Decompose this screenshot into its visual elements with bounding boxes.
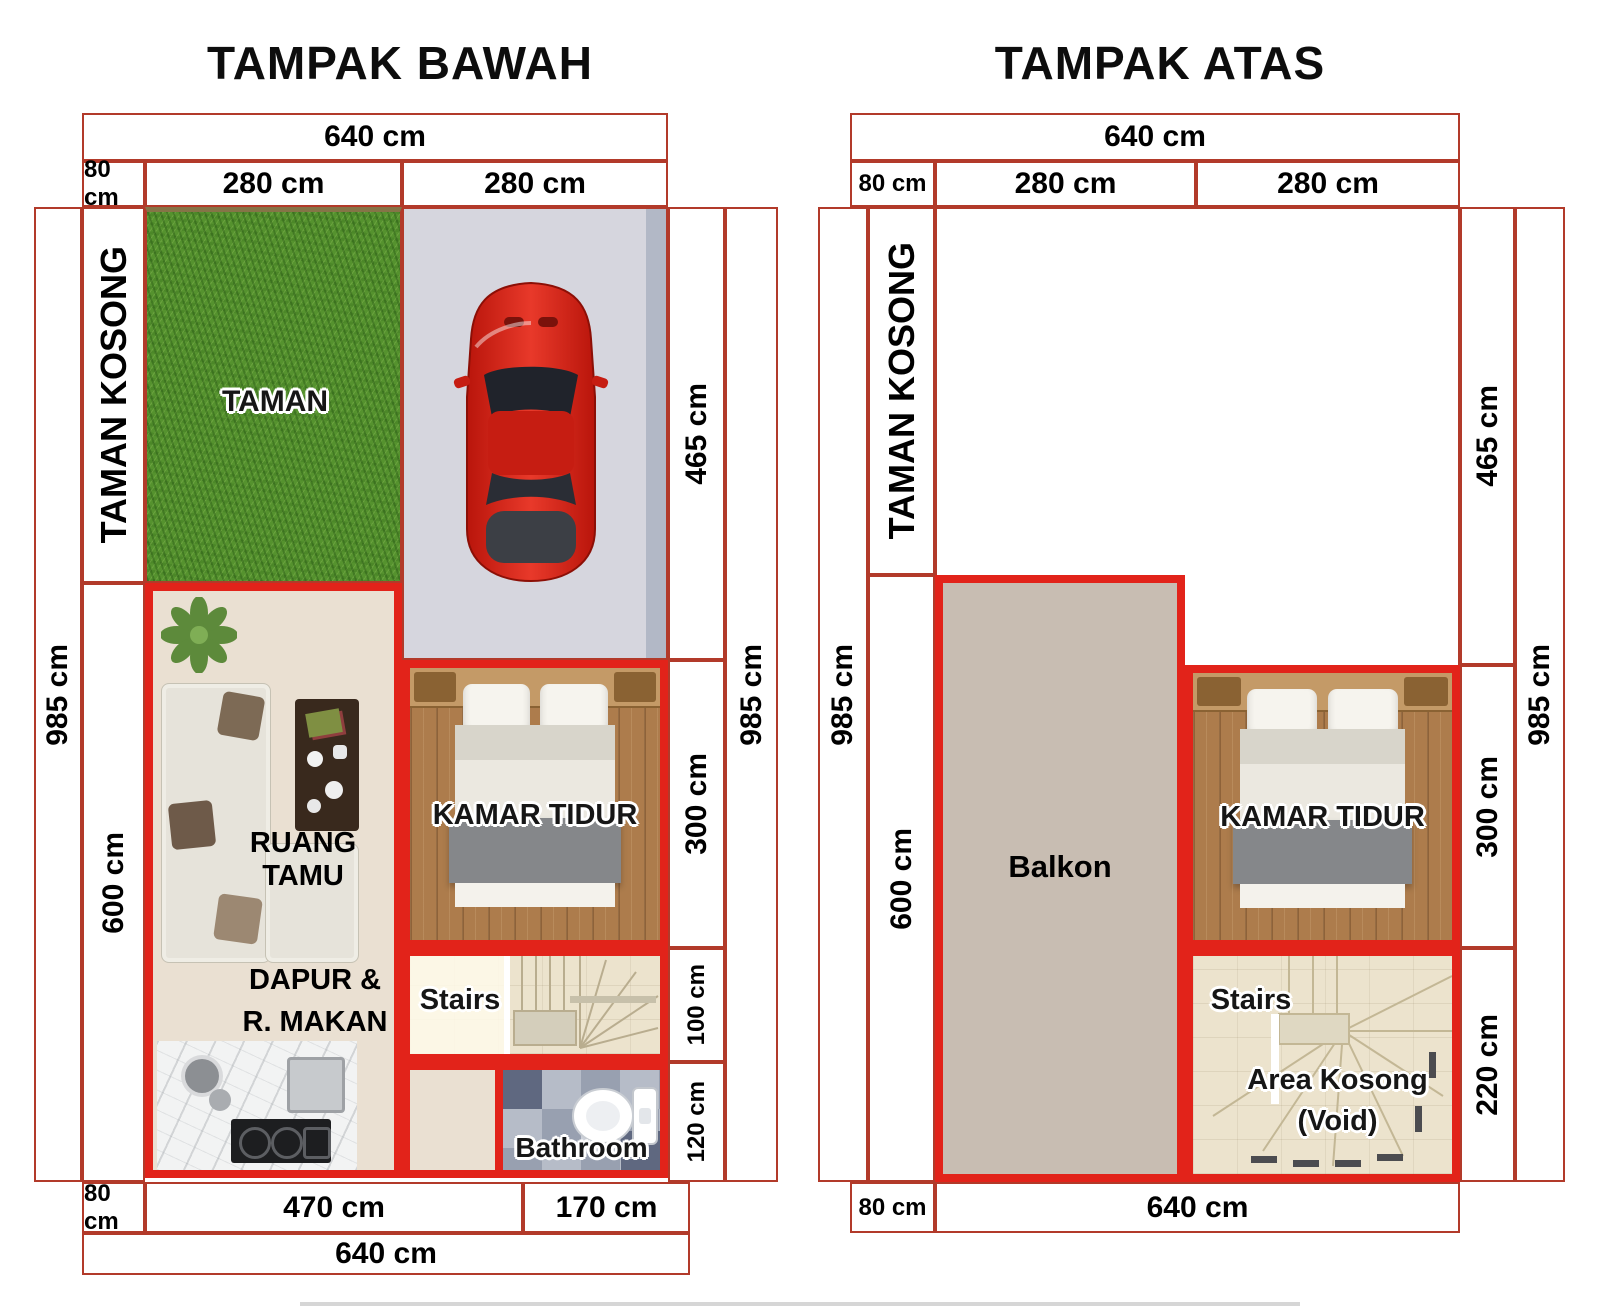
plan-bawah-title: TAMPAK BAWAH — [130, 36, 670, 90]
atas-dim-right-300: 300 cm — [1460, 665, 1515, 948]
bawah-dim-right-300: 300 cm — [668, 660, 725, 948]
bawah-dim-top-total: 640 cm — [82, 113, 668, 161]
kamar-tidur-room-bawah: KAMAR TIDUR — [402, 660, 668, 948]
floor-plan-canvas: TAMPAK BAWAH 640 cm 80 cm 280 cm 280 cm … — [0, 0, 1600, 1309]
atas-dim-top-280b: 280 cm — [1196, 161, 1460, 207]
bawah-dim-bottom-170: 170 cm — [523, 1182, 690, 1233]
bawah-dim-bottom-80: 80 cm — [82, 1182, 145, 1233]
coffee-table-graphic — [295, 699, 359, 831]
bawah-dim-right-465: 465 cm — [668, 207, 725, 660]
plant-graphic — [161, 597, 237, 673]
dapur-label: DAPUR & R. MAKAN — [225, 959, 405, 1043]
bottom-edge-line — [300, 1302, 1300, 1306]
plan-atas-title: TAMPAK ATAS — [890, 36, 1430, 90]
atas-dim-right-220: 220 cm — [1460, 948, 1515, 1182]
nightstand-right — [1404, 677, 1448, 706]
kamar-tidur-label-bawah: KAMAR TIDUR — [410, 799, 660, 832]
ruang-tamu-label: RUANG TAMU — [208, 827, 398, 893]
dapur-floor-patch — [402, 1062, 503, 1178]
red-car-top-view — [446, 277, 616, 589]
atas-dim-top-80: 80 cm — [850, 161, 935, 207]
atas-dim-bottom-total: 640 cm — [935, 1182, 1460, 1233]
bawah-dim-top-80: 80 cm — [82, 161, 145, 207]
nightstand-left — [1197, 677, 1241, 706]
kitchen-counter-graphic — [157, 1041, 357, 1170]
taman-label: TAMAN — [175, 385, 375, 419]
atas-dim-right-465: 465 cm — [1460, 207, 1515, 665]
bathroom-room: Bathroom — [495, 1062, 668, 1178]
bawah-dim-left-600: 600 cm — [82, 583, 145, 1182]
bawah-taman-kosong-strip: TAMAN KOSONG — [82, 207, 145, 583]
bed-sheet-fold — [1240, 729, 1406, 764]
nightstand-left — [414, 672, 457, 702]
atas-dim-top-total: 640 cm — [850, 113, 1460, 161]
area-kosong-void-label: Area Kosong (Void) — [1223, 1060, 1452, 1141]
living-dining-room: RUANG TAMU DAPUR & R. MAKAN — [145, 583, 402, 1178]
bed-foot-sheet — [455, 883, 615, 907]
kamar-tidur-room-atas: KAMAR TIDUR — [1185, 665, 1460, 948]
stairs-label-bawah: Stairs — [416, 984, 504, 1017]
sofa-graphic — [161, 683, 271, 963]
bathroom-label: Bathroom — [503, 1132, 660, 1164]
balkon-room: Balkon — [935, 575, 1185, 1182]
bawah-dim-top-280b: 280 cm — [402, 161, 668, 207]
bawah-dim-right-100: 100 cm — [668, 948, 725, 1062]
atas-dim-left-600: 600 cm — [868, 575, 935, 1182]
bawah-dim-left-985: 985 cm — [34, 207, 82, 1182]
atas-dim-left-985: 985 cm — [818, 207, 868, 1182]
atas-dim-bottom-80: 80 cm — [850, 1182, 935, 1233]
bawah-dim-bottom-total: 640 cm — [82, 1233, 690, 1275]
stairs-void-room-atas: Stairs Area Kosong (Void) — [1185, 948, 1460, 1182]
bawah-dim-top-280a: 280 cm — [145, 161, 402, 207]
atas-taman-kosong-strip: TAMAN KOSONG — [868, 207, 935, 575]
stairs-room-bawah: Stairs — [402, 948, 668, 1062]
stairs-label-atas: Stairs — [1201, 984, 1301, 1017]
nightstand-right — [614, 672, 657, 702]
atas-dim-top-280a: 280 cm — [935, 161, 1196, 207]
bed-foot-sheet — [1240, 884, 1406, 908]
kamar-tidur-label-atas: KAMAR TIDUR — [1193, 801, 1452, 834]
carport-wall-shadow — [646, 209, 666, 658]
balkon-label: Balkon — [943, 849, 1177, 885]
bawah-dim-right-985: 985 cm — [725, 207, 778, 1182]
bawah-dim-bottom-470: 470 cm — [145, 1182, 523, 1233]
bawah-dim-right-120: 120 cm — [668, 1062, 725, 1182]
atas-dim-right-985: 985 cm — [1515, 207, 1565, 1182]
bed-sheet-fold — [455, 725, 615, 760]
